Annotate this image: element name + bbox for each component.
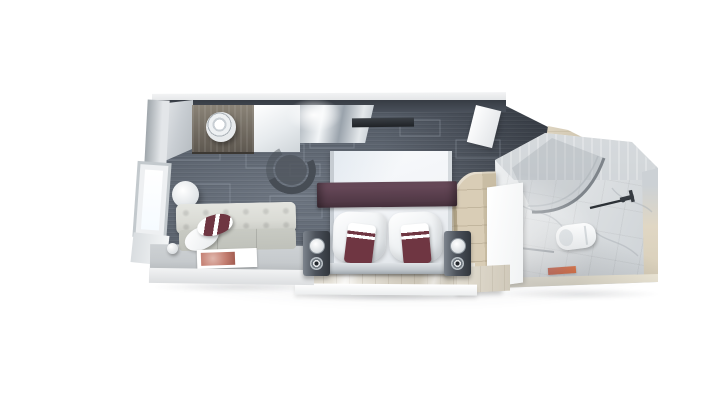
coffee-table-front [149, 268, 314, 285]
chrome-ring-icon [310, 257, 323, 270]
magazine-cover-art [201, 252, 235, 266]
window-frame [136, 164, 169, 236]
bed-runner [317, 181, 457, 207]
chrome-ring-icon [451, 257, 464, 270]
bedside-lamp-icon [309, 238, 325, 254]
front-wall-cut [295, 283, 477, 295]
cutaway-shadow [500, 288, 660, 300]
headboard [328, 263, 447, 274]
magazine [197, 248, 258, 269]
ice-bucket [206, 112, 236, 142]
faucet-icon [620, 190, 635, 203]
window-glass [141, 169, 163, 230]
sphere-lamp [167, 243, 178, 254]
window [132, 161, 171, 239]
left-wall-upper [144, 99, 169, 166]
floorplan-render [0, 0, 726, 409]
accent-cushion-left [344, 222, 377, 265]
toilet-bowl [558, 228, 574, 247]
toilet-lid-line [584, 226, 588, 245]
accent-cushion-right [400, 223, 431, 265]
bedside-lamp-icon [450, 238, 466, 254]
towel-rail-icon [520, 248, 554, 252]
nightstand-left [303, 231, 330, 276]
desk-light-glow [286, 98, 342, 132]
nightstand-right [444, 231, 471, 276]
wall-tv [352, 118, 414, 128]
desk-chair-seat [271, 151, 311, 189]
